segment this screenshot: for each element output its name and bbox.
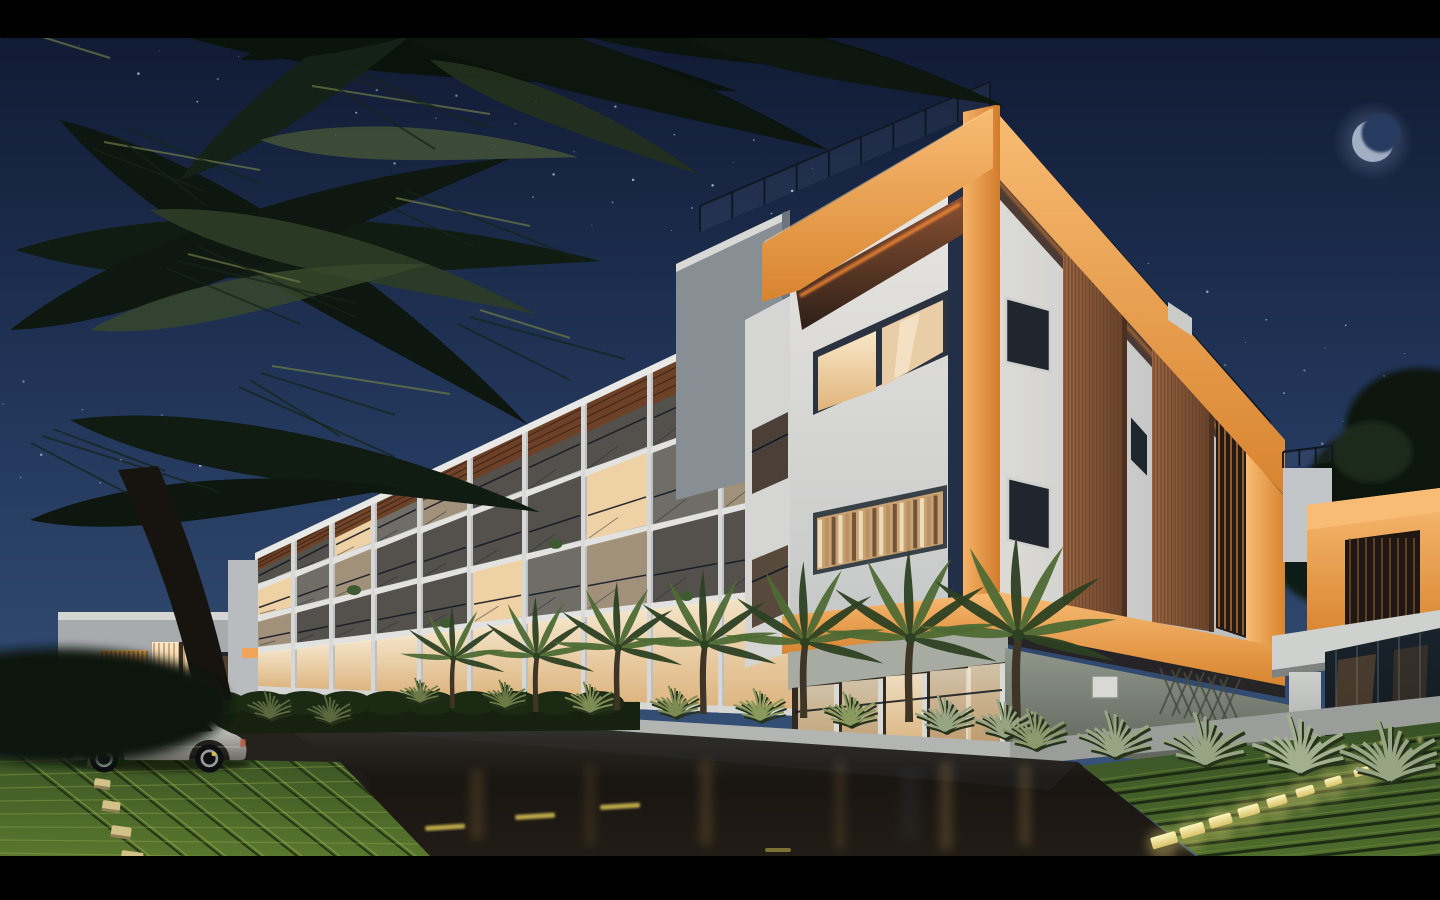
facade-mullion [522, 429, 526, 704]
star [733, 162, 734, 163]
crescent-moon [1333, 101, 1413, 181]
reflection-streak [940, 762, 952, 850]
palm-crown-core [1012, 629, 1024, 641]
panel-shadow [1122, 312, 1127, 620]
star [79, 45, 80, 46]
star [161, 414, 163, 416]
balcony-plant [549, 539, 563, 549]
glass-door [968, 664, 1000, 750]
reflection-streak [900, 770, 920, 840]
palm-crown-core [614, 644, 622, 652]
star [771, 213, 773, 215]
palm-crown-core [905, 633, 916, 644]
star [1303, 369, 1306, 372]
star [552, 173, 555, 176]
star [591, 225, 592, 226]
star [614, 105, 617, 108]
star [673, 134, 675, 136]
star [1148, 263, 1149, 264]
wall-window [1092, 676, 1118, 698]
balcony-unit [297, 645, 329, 690]
letterbox-top [0, 0, 1440, 38]
brake-caliper [212, 752, 216, 756]
star [711, 184, 714, 187]
star [2, 403, 4, 405]
star [338, 499, 340, 501]
star [435, 117, 437, 119]
star [217, 78, 220, 81]
balcony-unit [258, 649, 291, 688]
facade-mullion [291, 538, 295, 695]
reflection-streak [1020, 765, 1030, 845]
star [1283, 392, 1285, 394]
star [1404, 353, 1405, 354]
facade-mullion [417, 479, 421, 700]
wing-end-block [228, 560, 258, 700]
star [574, 151, 575, 152]
wheel [195, 744, 223, 772]
lane-dash [765, 848, 791, 852]
reflection-streak [470, 770, 484, 840]
facade-mullion [371, 500, 375, 698]
star [1325, 347, 1326, 348]
star [158, 50, 159, 51]
recessed-balcony [1216, 415, 1246, 638]
star [1265, 319, 1267, 321]
star [612, 202, 614, 204]
star [1321, 443, 1324, 446]
star [1345, 324, 1347, 326]
balcony-unit [335, 640, 371, 691]
balcony-unit [377, 635, 417, 693]
star [1342, 421, 1343, 422]
entrance-accent [242, 648, 258, 658]
star [99, 482, 101, 484]
star [632, 179, 635, 182]
render-canvas: Night-time 3D architectural rendering of… [0, 0, 1440, 900]
balcony-plant [347, 585, 361, 595]
star [1245, 342, 1246, 343]
star [355, 112, 357, 114]
star [514, 123, 516, 125]
balcony-unit [473, 623, 522, 698]
star [40, 454, 43, 457]
star [671, 230, 672, 231]
star [691, 207, 693, 209]
window [1008, 478, 1050, 550]
palm-crown-core [533, 653, 540, 660]
star [393, 162, 396, 165]
window [1006, 298, 1050, 372]
taillight [240, 739, 245, 747]
facade-mullion [329, 520, 333, 696]
facade-mullion [581, 401, 585, 707]
star [238, 56, 239, 57]
reflection-streak [835, 760, 845, 850]
star [82, 409, 84, 411]
distant-curb-light [1417, 737, 1423, 743]
architectural-render: Night-time 3D architectural rendering of… [0, 0, 1440, 900]
star [1206, 290, 1209, 293]
letterbox-bottom [0, 856, 1440, 900]
palm-crown-core [450, 655, 456, 661]
star [137, 72, 140, 75]
palm-crown-core [700, 640, 709, 649]
star [1224, 364, 1227, 367]
panel-shadow [1209, 411, 1214, 632]
moon-shadow [1362, 114, 1401, 153]
star [376, 89, 379, 92]
reflection-streak [700, 760, 712, 845]
reflection-streak [585, 765, 595, 845]
star [22, 380, 25, 383]
star [455, 94, 458, 97]
star [753, 139, 755, 141]
star [532, 196, 534, 198]
star [20, 477, 22, 479]
palm-crown-core [800, 637, 810, 647]
star [196, 101, 198, 103]
